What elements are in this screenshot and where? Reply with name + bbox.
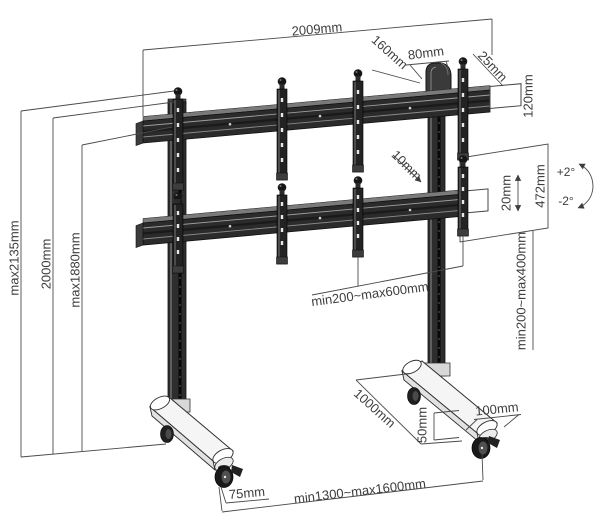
dim-height-max: max2135mm	[6, 91, 174, 457]
left-foot	[148, 393, 243, 487]
vesa-strip	[458, 155, 469, 236]
dim-tilt-up-label: +2°	[557, 165, 576, 179]
stand-structure	[136, 57, 548, 487]
vesa-strip	[277, 183, 288, 264]
dim-total-width-label: 2009mm	[291, 19, 343, 38]
dim-end-gap: 25mm	[473, 48, 511, 86]
dim-height-column-label: 2000mm	[38, 239, 53, 290]
vesa-strip	[173, 87, 184, 190]
dim-tilt-range: +2° -2°	[557, 164, 593, 208]
dim-wheel-width-label: 75mm	[228, 484, 265, 502]
dim-fine-adjust: 20mm	[498, 175, 518, 211]
dim-vesa-height-range: min200~max400mm	[513, 231, 533, 350]
rail-end-reference-box	[465, 189, 488, 213]
right-column	[428, 90, 445, 376]
rail-end-reference-box	[490, 84, 521, 109]
dim-height-rail-label: max1880mm	[67, 232, 82, 307]
caster-wheel	[408, 388, 421, 405]
dim-top-offset-label: 160mm	[369, 32, 411, 72]
stand-drawing: 2009mm max2135mm 2000mm max1880mm 160mm	[0, 0, 600, 525]
vesa-strip	[277, 77, 288, 180]
caster-wheel	[472, 436, 500, 459]
dim-vesa-width-range-label: min200~max600mm	[310, 279, 429, 309]
caster-wheel	[215, 465, 243, 488]
dim-handle-width-label: 80mm	[407, 43, 445, 62]
dim-vesa-height-range-label: min200~max400mm	[513, 232, 528, 350]
dim-height-max-label: max2135mm	[6, 220, 21, 295]
vesa-strip	[458, 57, 469, 160]
dim-fine-adjust-label: 20mm	[498, 175, 513, 211]
dim-rail-height-label: 120mm	[520, 74, 535, 117]
dim-base-depth-label: 1000mm	[351, 386, 399, 431]
vesa-strip	[353, 176, 364, 257]
vesa-strip	[353, 69, 364, 172]
dim-strip-gap-label: 10mm	[389, 147, 425, 183]
vesa-strip	[173, 192, 184, 273]
caster-wheel	[161, 426, 174, 443]
floor-reference-line	[21, 444, 166, 457]
dim-foot-height-label: 50mm	[414, 407, 429, 443]
dimension-diagram: 2009mm max2135mm 2000mm max1880mm 160mm	[0, 0, 600, 525]
dim-base-width-range-label: min1300~max1600mm	[293, 476, 426, 507]
dim-end-gap-label: 25mm	[475, 48, 511, 85]
dim-strip-length-label: 472mm	[532, 164, 547, 207]
top-handle-bracket	[426, 63, 451, 92]
dim-tilt-down-label: -2°	[558, 194, 574, 208]
dim-strip-gap: 10mm	[389, 147, 425, 183]
dim-base-width-range: min1300~max1600mm	[219, 454, 483, 512]
dim-wheel-width: 75mm	[221, 484, 269, 503]
